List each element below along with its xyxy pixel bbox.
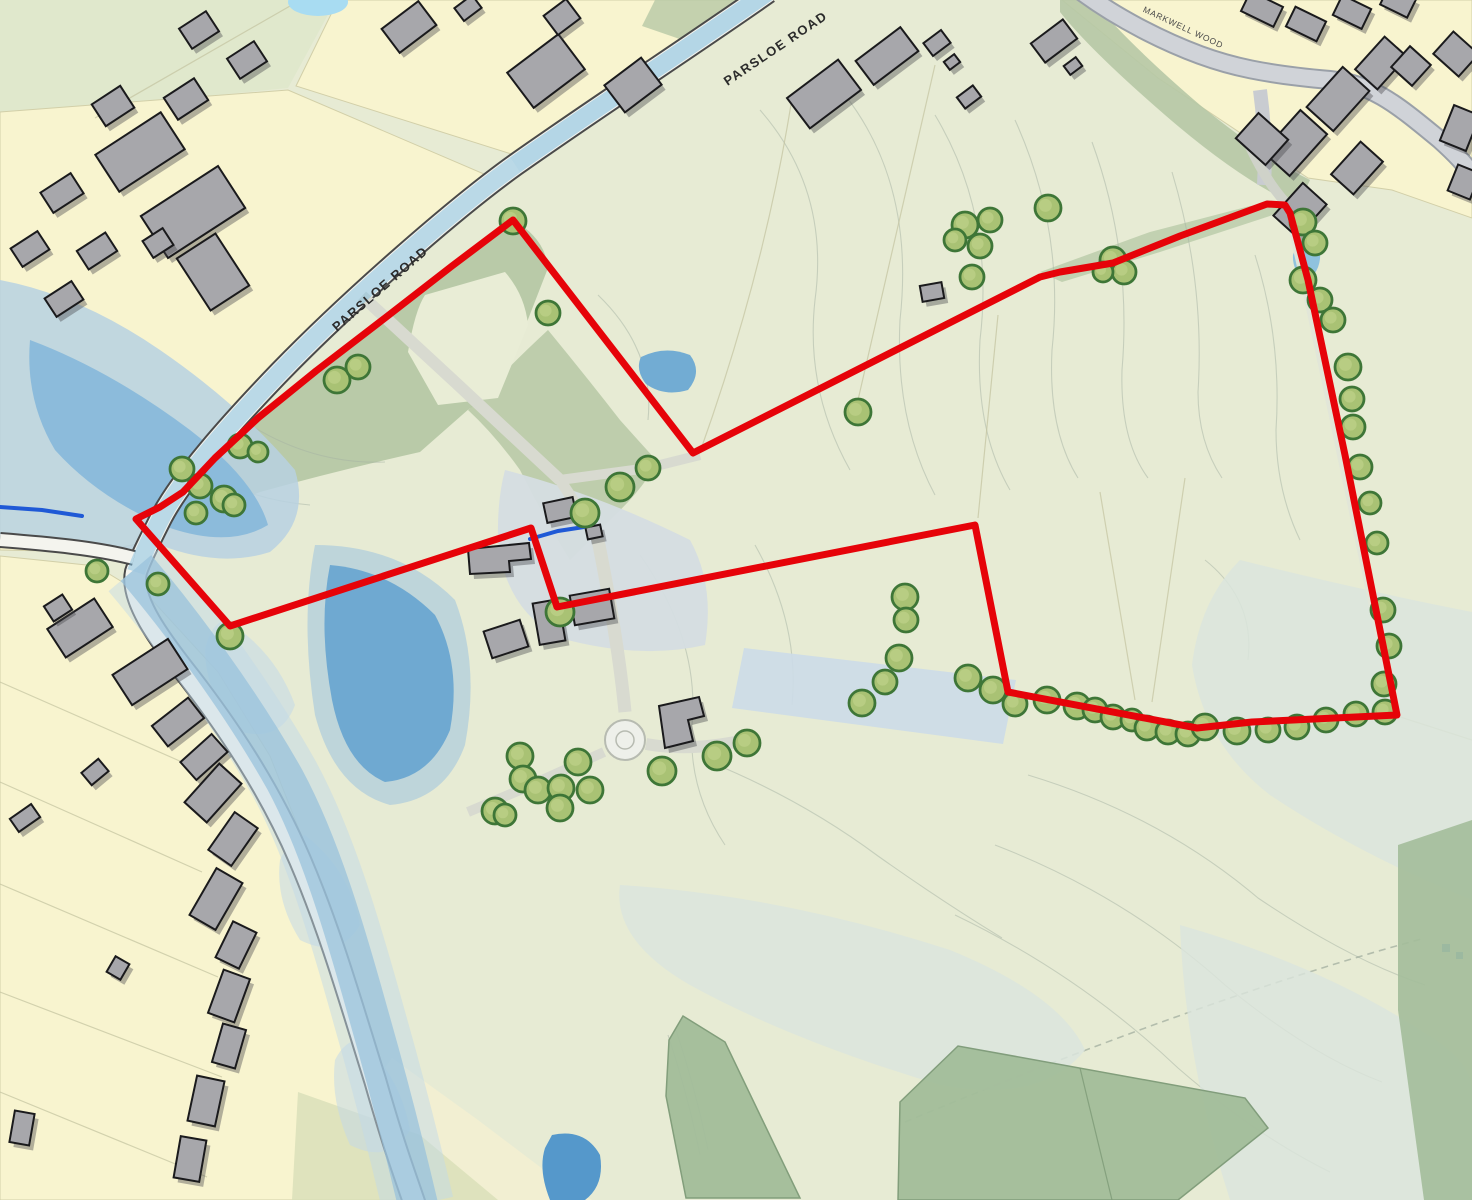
tree-highlight bbox=[174, 461, 186, 473]
tree-highlight bbox=[569, 753, 582, 766]
tree-highlight bbox=[898, 612, 910, 624]
tree-highlight bbox=[982, 212, 994, 224]
roundabout bbox=[605, 720, 645, 760]
tree-highlight bbox=[890, 649, 903, 662]
tree-highlight bbox=[956, 216, 969, 229]
tree-highlight bbox=[610, 477, 624, 491]
building bbox=[920, 282, 944, 302]
tree-highlight bbox=[1344, 391, 1356, 403]
tree-highlight bbox=[652, 761, 666, 775]
tree-highlight bbox=[575, 503, 589, 517]
tree-highlight bbox=[707, 746, 721, 760]
tree-highlight bbox=[1376, 676, 1388, 688]
tree-highlight bbox=[581, 781, 594, 794]
tree-highlight bbox=[1039, 199, 1052, 212]
tree-highlight bbox=[959, 669, 972, 682]
tree-highlight bbox=[1362, 495, 1373, 506]
map-stage: PARSLOE ROADPARSLOE ROADMARKWELL WOOD bbox=[0, 0, 1472, 1200]
tree-highlight bbox=[972, 238, 984, 250]
tree-highlight bbox=[947, 232, 958, 243]
tree-highlight bbox=[1325, 312, 1337, 324]
tree-highlight bbox=[89, 563, 100, 574]
tree-highlight bbox=[1345, 419, 1357, 431]
tree-highlight bbox=[514, 770, 527, 783]
tree-highlight bbox=[853, 694, 866, 707]
tree-highlight bbox=[552, 779, 565, 792]
tree-highlight bbox=[896, 588, 909, 601]
tree-highlight bbox=[640, 460, 652, 472]
tree-highlight bbox=[188, 505, 199, 516]
tree-highlight bbox=[877, 674, 889, 686]
tree-highlight bbox=[984, 681, 997, 694]
tree-highlight bbox=[226, 497, 237, 508]
tree-highlight bbox=[1007, 696, 1019, 708]
tree-highlight bbox=[251, 445, 261, 455]
tree-highlight bbox=[328, 371, 341, 384]
tree-highlight bbox=[1339, 358, 1352, 371]
tree-highlight bbox=[1307, 235, 1319, 247]
site-location-plan: PARSLOE ROADPARSLOE ROADMARKWELL WOOD bbox=[0, 0, 1472, 1200]
tree-highlight bbox=[1116, 264, 1128, 276]
tree-highlight bbox=[529, 781, 542, 794]
tree-highlight bbox=[350, 359, 362, 371]
tree-highlight bbox=[964, 269, 976, 281]
building bbox=[9, 1111, 34, 1146]
tree-highlight bbox=[551, 799, 564, 812]
tree-highlight bbox=[849, 403, 862, 416]
tree-highlight bbox=[150, 576, 161, 587]
tree-highlight bbox=[1369, 535, 1380, 546]
tree-highlight bbox=[540, 305, 552, 317]
tree-highlight bbox=[497, 807, 508, 818]
tree-highlight bbox=[738, 734, 751, 747]
tree-highlight bbox=[1352, 459, 1364, 471]
tree-highlight bbox=[511, 747, 524, 760]
